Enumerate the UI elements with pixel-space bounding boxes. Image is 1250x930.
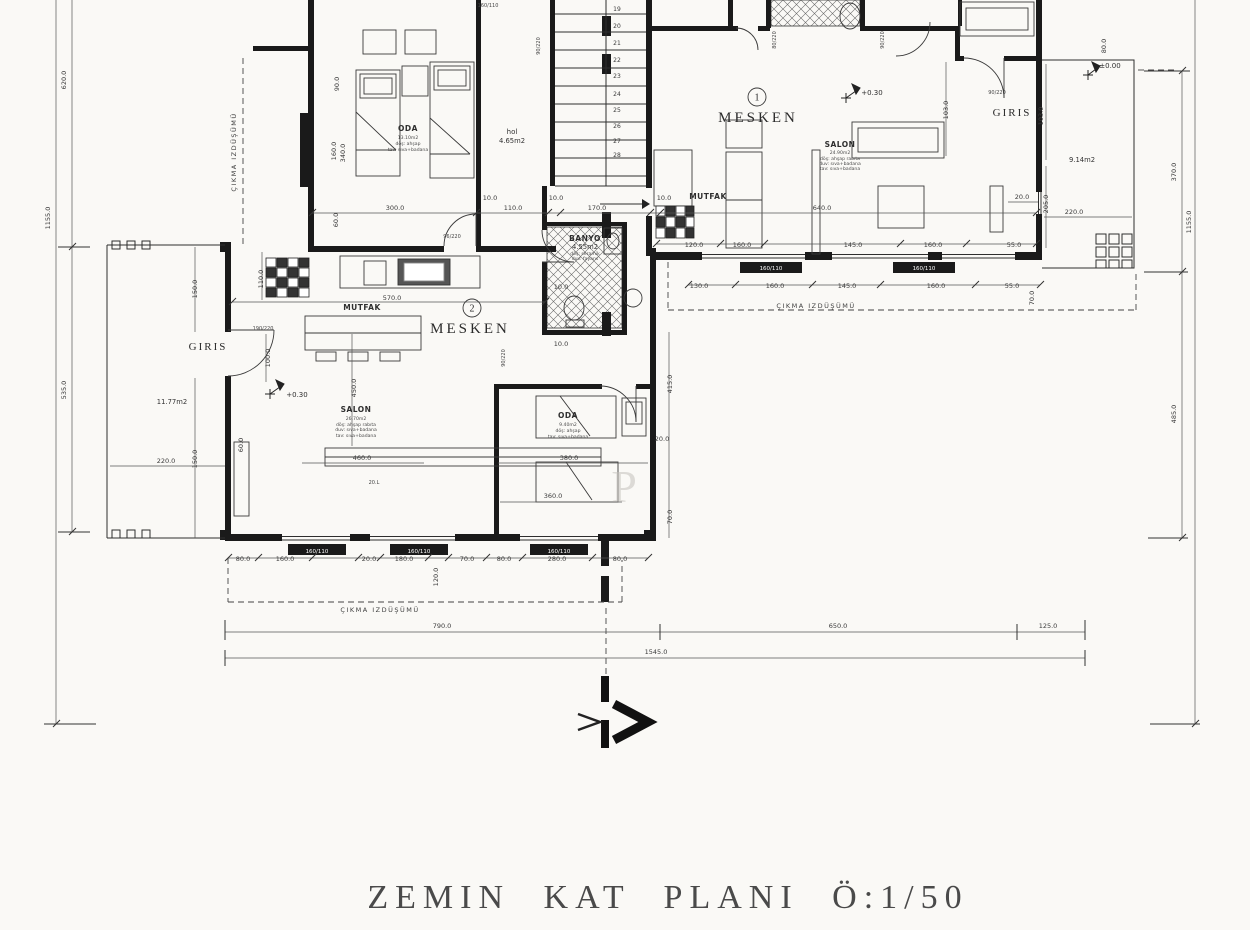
svg-text:20.0: 20.0 (1015, 193, 1029, 201)
svg-text:22: 22 (613, 57, 621, 64)
unit-1-number: 1 (755, 93, 760, 104)
svg-text:103.0: 103.0 (942, 101, 950, 120)
svg-text:160/110: 160/110 (548, 549, 571, 555)
svg-text:90.0: 90.0 (333, 77, 341, 91)
hol-area: 4.65m2 (499, 137, 525, 145)
porch-elevation: ±0.00 (1099, 62, 1120, 70)
svg-text:460.0: 460.0 (353, 454, 372, 462)
svg-text:20.0: 20.0 (655, 435, 669, 443)
banyo-label: BANYO (569, 234, 601, 243)
unit-1-elevation: +0.30 (861, 89, 882, 97)
svg-text:10.0: 10.0 (657, 194, 671, 202)
svg-text:450.0: 450.0 (350, 379, 358, 398)
plan-title: ZEMIN KAT PLANI Ö:1/50 (367, 879, 968, 916)
svg-text:1545.0: 1545.0 (645, 648, 668, 656)
staircase (555, 0, 646, 186)
svg-text:tav: sıva+badana: tav: sıva+badana (820, 166, 861, 172)
svg-text:19: 19 (613, 6, 621, 13)
svg-text:ÇIKMA IZDÜŞÜMÜ: ÇIKMA IZDÜŞÜMÜ (340, 605, 419, 614)
svg-text:620.0: 620.0 (60, 71, 68, 90)
svg-text:160/110: 160/110 (306, 549, 329, 555)
unit-2-label: MESKEN (430, 321, 510, 337)
mutfak1-label: MUTFAK (689, 192, 727, 201)
svg-text:80.0: 80.0 (613, 555, 627, 563)
svg-text:ÇIKMA IZDÜŞÜMÜ: ÇIKMA IZDÜŞÜMÜ (776, 301, 855, 310)
svg-text:21: 21 (613, 40, 621, 47)
svg-text:60.0: 60.0 (332, 213, 340, 227)
svg-text:24.90m2: 24.90m2 (830, 150, 851, 156)
svg-text:640.0: 640.0 (813, 204, 832, 212)
svg-text:160/110: 160/110 (760, 266, 783, 272)
svg-text:190/220: 190/220 (253, 326, 274, 332)
svg-text:415.0: 415.0 (666, 375, 674, 394)
svg-text:tav: sıva+badana: tav: sıva+badana (336, 433, 377, 439)
svg-text:10.0: 10.0 (554, 340, 568, 348)
stair-step-numbers: 19202122232425262728 (613, 6, 621, 159)
svg-text:150.0: 150.0 (191, 280, 199, 299)
svg-text:70.0: 70.0 (460, 555, 474, 563)
svg-text:160.0: 160.0 (766, 282, 785, 290)
svg-text:duv: fayans: duv: fayans (572, 256, 599, 262)
giris-left-area: 11.77m2 (157, 398, 187, 406)
svg-text:125.0: 125.0 (1039, 622, 1058, 630)
svg-text:1155.0: 1155.0 (44, 207, 52, 230)
dashed-projection-lines (228, 58, 1178, 700)
svg-text:90/220: 90/220 (880, 31, 886, 49)
unit-1-label: MESKEN (718, 110, 798, 126)
svg-text:tav: sıva+badana: tav: sıva+badana (548, 434, 589, 440)
svg-text:145.0: 145.0 (844, 241, 863, 249)
svg-text:26: 26 (613, 123, 621, 130)
svg-text:10.0: 10.0 (554, 283, 568, 291)
svg-text:340.0: 340.0 (339, 144, 347, 163)
svg-text:duv: sıva+badana: duv: sıva+badana (335, 427, 377, 433)
svg-text:55.0: 55.0 (1007, 241, 1021, 249)
unit-2-elevation: +0.30 (286, 391, 307, 399)
svg-text:96/220: 96/220 (443, 234, 461, 240)
svg-text:160/110: 160/110 (913, 266, 936, 272)
svg-text:120.0: 120.0 (685, 241, 704, 249)
svg-text:10.0: 10.0 (549, 194, 563, 202)
giris-left-label: GIRIS (189, 341, 228, 353)
svg-text:280.0: 280.0 (548, 555, 567, 563)
svg-text:485.0: 485.0 (1170, 405, 1178, 424)
svg-text:300.0: 300.0 (386, 204, 405, 212)
svg-text:26.70m2: 26.70m2 (346, 416, 367, 422)
svg-text:160.0: 160.0 (330, 142, 338, 161)
svg-text:160.0: 160.0 (276, 555, 295, 563)
giris-right-area: 9.14m2 (1069, 156, 1095, 164)
svg-text:27: 27 (613, 138, 621, 145)
svg-text:döş: ahşap: döş: ahşap (556, 428, 581, 434)
svg-text:120.0: 120.0 (432, 568, 440, 587)
svg-text:110.0: 110.0 (504, 204, 523, 212)
svg-text:160.0: 160.0 (924, 241, 943, 249)
svg-text:20.L: 20.L (369, 480, 380, 486)
svg-text:80.0: 80.0 (497, 555, 511, 563)
svg-text:90/220: 90/220 (988, 90, 1006, 96)
svg-text:790.0: 790.0 (433, 622, 452, 630)
svg-text:20: 20 (613, 23, 621, 30)
floor-plan-drawing: P 1 MESKEN +0.30 2 MESKEN +0.30 ±0.00 OD… (0, 0, 1250, 930)
svg-text:9.40m2: 9.40m2 (559, 422, 577, 428)
svg-text:170.0: 170.0 (588, 204, 607, 212)
svg-text:110.0: 110.0 (257, 270, 265, 289)
oda1-label: ODA (398, 124, 418, 133)
oda2-label: ODA (558, 411, 578, 420)
svg-text:70.0: 70.0 (1028, 291, 1036, 305)
giris-right-label: GIRIS (993, 107, 1032, 119)
svg-text:25: 25 (613, 107, 621, 114)
bathroom-hatch (547, 0, 860, 328)
svg-text:55.0: 55.0 (1005, 282, 1019, 290)
svg-text:220.0: 220.0 (157, 457, 176, 465)
scanned-plan-page: P 1 MESKEN +0.30 2 MESKEN +0.30 ±0.00 OD… (0, 0, 1250, 930)
svg-text:döş: ahşap: döş: ahşap (396, 141, 421, 147)
salon2-label: SALON (341, 405, 372, 414)
svg-text:380.0: 380.0 (560, 454, 579, 462)
svg-text:360.0: 360.0 (544, 492, 563, 500)
svg-text:28: 28 (613, 152, 621, 159)
svg-text:80.0: 80.0 (236, 555, 250, 563)
svg-text:160.0: 160.0 (733, 241, 752, 249)
svg-text:103.0: 103.0 (1037, 107, 1045, 126)
svg-text:130.0: 130.0 (690, 282, 709, 290)
svg-text:60.0: 60.0 (237, 438, 245, 452)
svg-text:ÇIKMA IZDÜŞÜMÜ: ÇIKMA IZDÜŞÜMÜ (229, 112, 238, 191)
svg-text:205.0: 205.0 (1042, 195, 1050, 214)
svg-text:370.0: 370.0 (1170, 163, 1178, 182)
svg-text:1155.0: 1155.0 (1185, 211, 1193, 234)
svg-text:145.0: 145.0 (838, 282, 857, 290)
svg-text:180.0: 180.0 (395, 555, 414, 563)
svg-text:100.0: 100.0 (264, 349, 272, 368)
svg-text:150.0: 150.0 (191, 450, 199, 469)
svg-text:80/220: 80/220 (772, 31, 778, 49)
svg-text:160/110: 160/110 (478, 3, 499, 9)
unit-2-number: 2 (470, 304, 475, 315)
svg-text:90/220: 90/220 (501, 349, 507, 367)
svg-text:10.0: 10.0 (483, 194, 497, 202)
svg-text:24: 24 (613, 91, 621, 98)
svg-text:70.0: 70.0 (666, 510, 674, 524)
svg-text:20.0: 20.0 (362, 555, 376, 563)
svg-text:90/220: 90/220 (536, 37, 542, 55)
svg-text:160/110: 160/110 (408, 549, 431, 555)
svg-text:80.0: 80.0 (1100, 39, 1108, 53)
hol-label: hol (507, 128, 518, 136)
svg-text:570.0: 570.0 (383, 294, 402, 302)
svg-text:13.10m2: 13.10m2 (398, 135, 419, 141)
svg-text:23: 23 (613, 73, 621, 80)
svg-text:tav: sıva+badana: tav: sıva+badana (388, 147, 429, 153)
svg-text:535.0: 535.0 (60, 381, 68, 400)
watermark: P (611, 461, 637, 512)
svg-text:650.0: 650.0 (829, 622, 848, 630)
svg-text:220.0: 220.0 (1065, 208, 1084, 216)
mutfak2-label: MUTFAK (343, 303, 381, 312)
banyo-area: 4.55m2 (572, 243, 598, 251)
salon1-label: SALON (825, 140, 856, 149)
svg-text:160.0: 160.0 (927, 282, 946, 290)
